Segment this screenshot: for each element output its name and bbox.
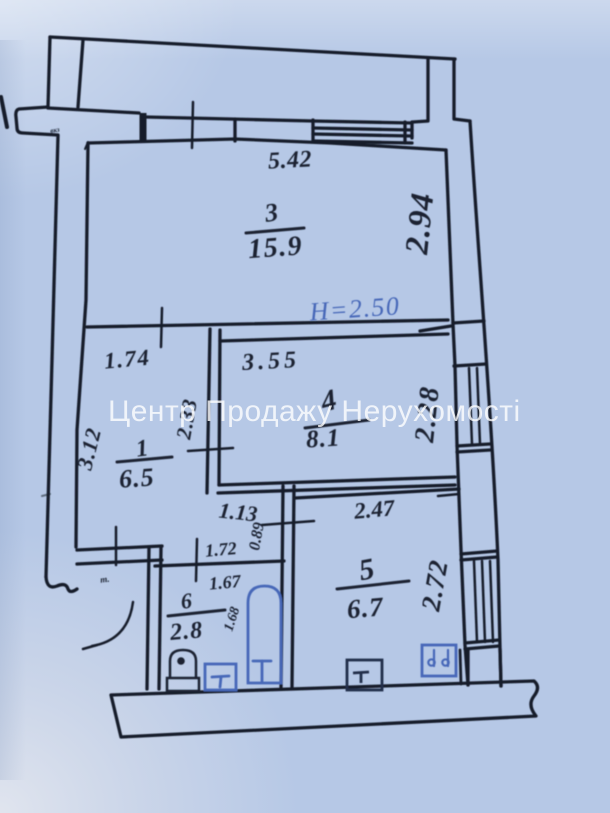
svg-text:1.74: 1.74 bbox=[103, 345, 151, 374]
svg-text:5.42: 5.42 bbox=[267, 146, 312, 174]
svg-text:3.55: 3.55 bbox=[240, 347, 300, 376]
svg-text:m.: m. bbox=[100, 574, 111, 585]
svg-text:15.9: 15.9 bbox=[247, 230, 304, 265]
svg-text:вкз: вкз bbox=[50, 125, 61, 135]
svg-text:6.5: 6.5 bbox=[118, 462, 155, 493]
svg-text:2.47: 2.47 bbox=[352, 495, 397, 524]
svg-text:2.94: 2.94 bbox=[399, 191, 441, 257]
svg-text:Центр Продажу Нерухомості: Центр Продажу Нерухомості bbox=[108, 395, 521, 428]
svg-text:1.72: 1.72 bbox=[204, 538, 237, 561]
svg-text:2.8: 2.8 bbox=[168, 617, 204, 646]
svg-text:1.67: 1.67 bbox=[208, 571, 242, 594]
svg-text:6.7: 6.7 bbox=[346, 591, 386, 624]
